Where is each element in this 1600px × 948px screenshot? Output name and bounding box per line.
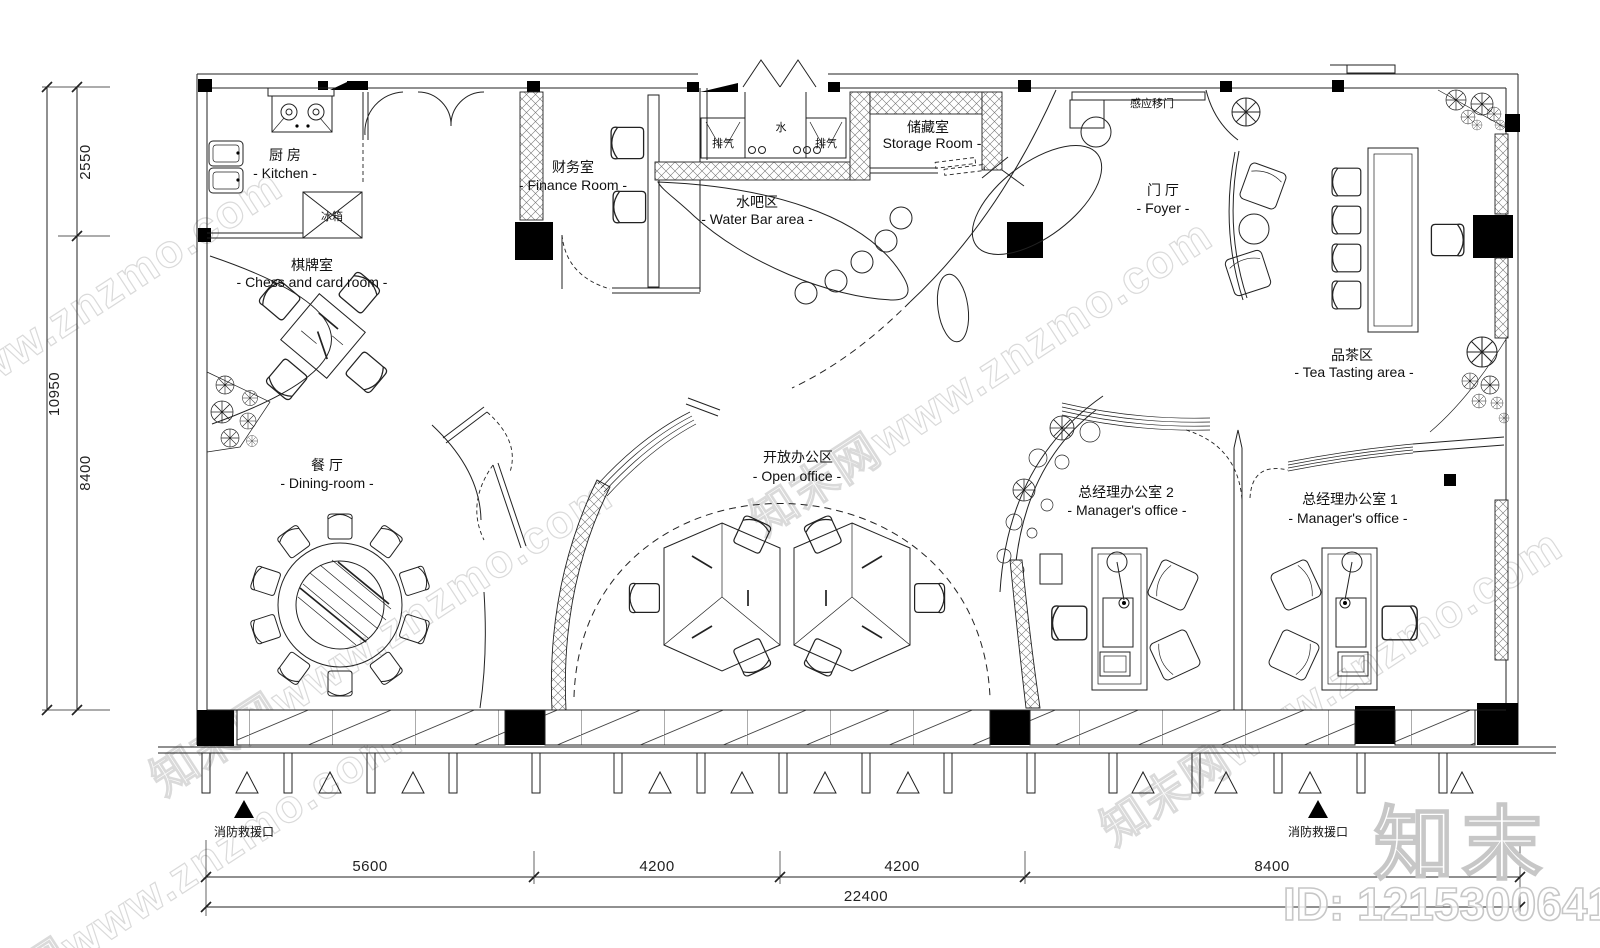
exhaust-label: 排气 [815,136,837,150]
foyer-label-en: - Foyer - [1137,200,1190,216]
foyer-label-cn: 门 厅 [1147,182,1179,198]
storage-label-cn: 储藏室 [907,119,949,135]
chess-label-en: - Chess and card room - [237,274,388,290]
kitchen-label-cn: 厨 房 [269,147,301,163]
brand-logo: 知末 [1374,800,1550,889]
open-office-label-cn: 开放办公区 [763,449,833,465]
floor-plan-svg: 知末网www.znzmo.com 知末网www.znzmo.com 知末网www… [0,0,1600,948]
room-finance: 财务室 - Finance Room - [519,88,707,293]
chess-label-cn: 棋牌室 [291,257,333,273]
manager1-label-en: - Manager's office - [1288,510,1407,526]
exhaust-label: 排气 [712,136,734,150]
dining-label-en: - Dining-room - [280,475,374,491]
dim-2550: 2550 [77,144,94,179]
sensor-door-label: 感应移门 [1130,96,1174,110]
water-label: 水 [776,121,787,134]
waterbar-label-cn: 水吧区 [736,194,778,210]
finance-label-cn: 财务室 [552,159,594,175]
bar-counter [655,162,855,180]
floor-plan-page: 知末网www.znzmo.com 知末网www.znzmo.com 知末网www… [0,0,1600,948]
room-water-bar: 水 排气 排气 水吧区 - Water Bar area - [655,92,912,304]
room-chess: 棋牌室 - Chess and card room - [210,256,388,424]
dim-5600: 5600 [352,858,387,875]
watermark-brand: 知末 ID: 1215300641 [1283,800,1600,930]
dim-total-10950: 10950 [46,372,63,416]
fire-rescue-label: 消防救援口 [214,824,274,839]
dim-4200: 4200 [884,858,919,875]
dim-8400: 8400 [1254,858,1289,875]
tea-label-cn: 品茶区 [1331,347,1373,363]
waterbar-label-en: - Water Bar area - [701,211,813,227]
dim-8400-left: 8400 [77,455,94,490]
dining-label-cn: 餐 厅 [311,457,343,473]
manager1-label-cn: 总经理办公室 1 [1302,491,1398,507]
manager2-label-cn: 总经理办公室 2 [1078,484,1174,500]
room-manager2: 总经理办公室 2 - Manager's office - [1010,403,1242,745]
room-manager1: 总经理办公室 1 - Manager's office - [1250,437,1504,690]
tea-label-en: - Tea Tasting area - [1294,364,1414,380]
room-tea: 品茶区 - Tea Tasting area - [1294,148,1464,380]
kitchen-label-en: - Kitchen - [253,165,317,181]
entrance-door [743,60,816,87]
storage-label-en: Storage Room - [883,135,982,151]
fire-rescue-label: 消防救援口 [1288,824,1348,839]
open-office-label-en: - Open office - [753,468,842,484]
image-id: ID: 1215300641 [1283,878,1600,930]
dim-total-22400: 22400 [844,888,888,905]
foyer-sofa [1229,151,1247,300]
room-open-office: 开放办公区 - Open office - [551,398,990,710]
fire-rescue-marker [1308,800,1328,818]
fridge-label: 冰箱 [321,209,343,223]
room-storage: 储藏室 Storage Room - [850,92,1024,186]
dim-4200: 4200 [639,858,674,875]
tea-table [1368,148,1418,332]
finance-desk [648,95,659,287]
finance-label-en: - Finance Room - [519,177,627,193]
manager2-label-en: - Manager's office - [1067,502,1186,518]
planter-left [207,372,270,452]
bar-curve [658,182,908,300]
